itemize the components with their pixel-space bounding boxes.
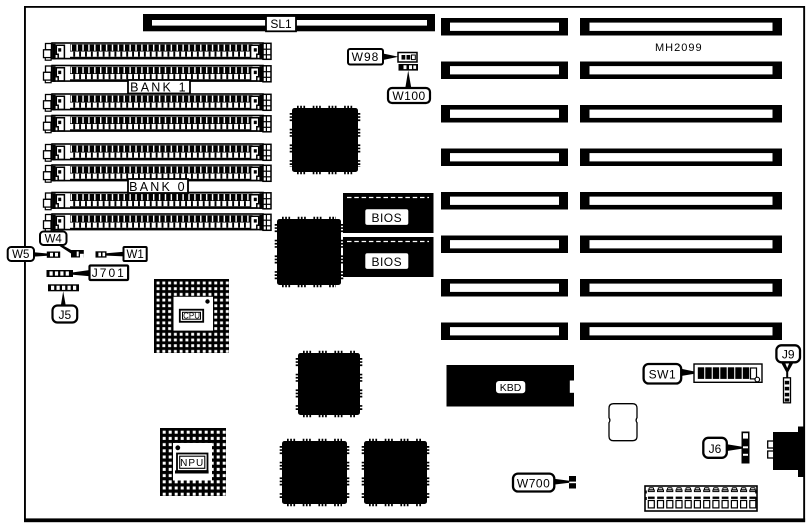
svg-text:SW1: SW1 bbox=[649, 368, 677, 382]
svg-text:BIOS: BIOS bbox=[371, 211, 402, 225]
svg-text:NPU: NPU bbox=[180, 458, 204, 469]
svg-text:BANK 0: BANK 0 bbox=[129, 180, 187, 194]
svg-text:J6: J6 bbox=[709, 442, 722, 456]
svg-text:J701: J701 bbox=[92, 266, 126, 280]
svg-text:MH2099: MH2099 bbox=[655, 42, 703, 54]
svg-text:W1: W1 bbox=[126, 249, 143, 261]
svg-text:W5: W5 bbox=[12, 249, 29, 261]
svg-text:W100: W100 bbox=[392, 89, 425, 103]
svg-text:W700: W700 bbox=[517, 476, 550, 490]
svg-text:W4: W4 bbox=[45, 233, 63, 245]
svg-text:KBD: KBD bbox=[500, 382, 522, 394]
svg-text:BIOS: BIOS bbox=[371, 255, 402, 269]
svg-text:SL1: SL1 bbox=[270, 17, 292, 31]
svg-text:CPU: CPU bbox=[183, 311, 200, 320]
svg-text:W98: W98 bbox=[352, 50, 380, 64]
svg-text:J5: J5 bbox=[58, 308, 71, 322]
svg-text:J9: J9 bbox=[782, 348, 795, 362]
svg-text:BANK 1: BANK 1 bbox=[130, 80, 188, 94]
